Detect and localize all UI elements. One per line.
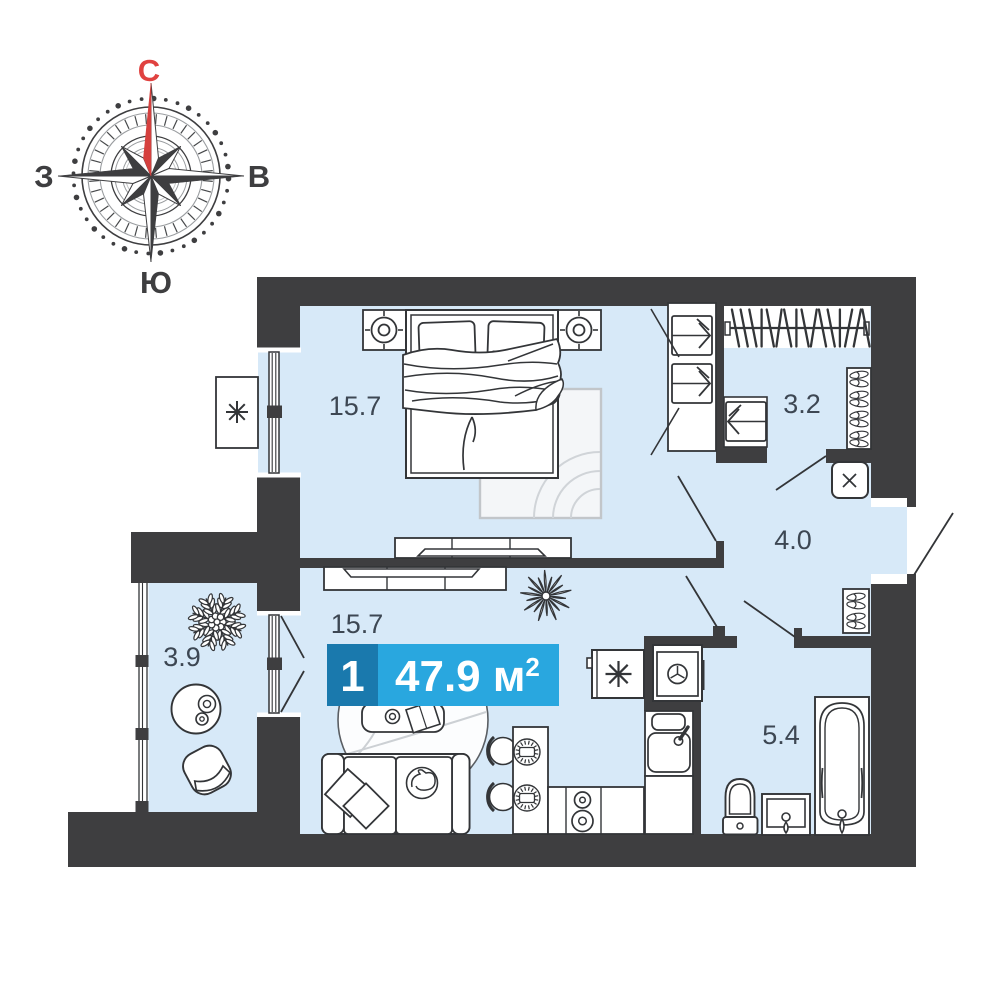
svg-text:3.9: 3.9 [163, 642, 201, 672]
svg-text:С: С [138, 53, 160, 88]
svg-text:15.7: 15.7 [329, 391, 382, 421]
svg-text:1: 1 [340, 652, 364, 701]
svg-text:47.9 м2: 47.9 м2 [395, 652, 540, 701]
svg-text:Ю: Ю [140, 265, 172, 300]
svg-text:3.2: 3.2 [783, 389, 821, 419]
svg-text:5.4: 5.4 [762, 720, 800, 750]
svg-text:З: З [34, 159, 53, 194]
svg-text:4.0: 4.0 [774, 525, 812, 555]
svg-text:В: В [248, 159, 270, 194]
svg-text:15.7: 15.7 [331, 609, 384, 639]
